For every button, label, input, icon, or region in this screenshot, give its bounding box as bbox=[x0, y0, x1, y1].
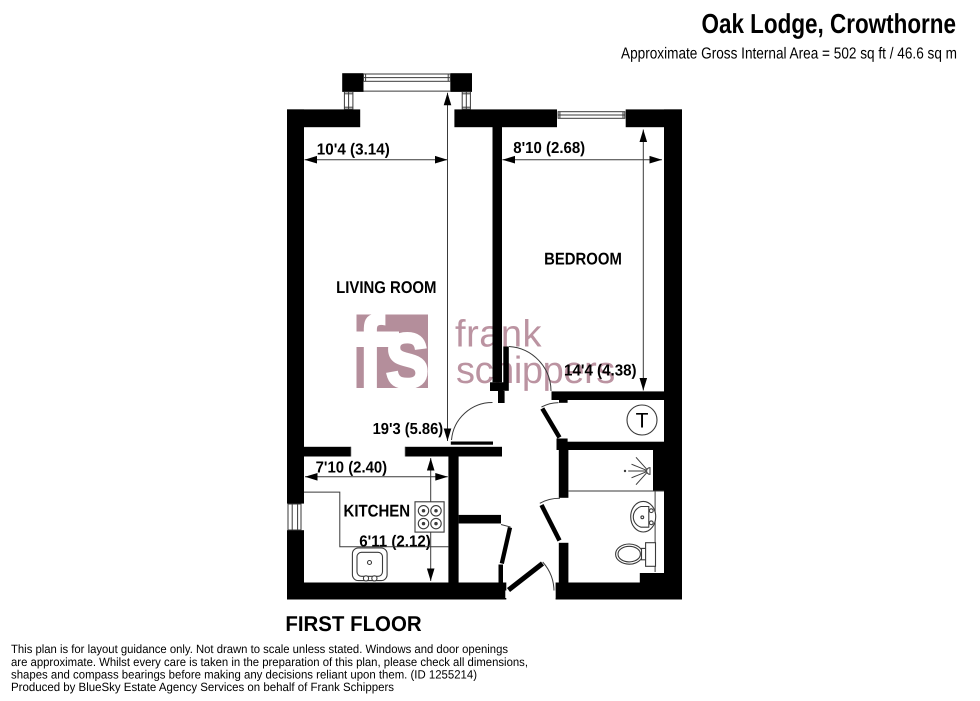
svg-text:FIRST FLOOR: FIRST FLOOR bbox=[285, 612, 422, 636]
svg-text:14'4 (4.38): 14'4 (4.38) bbox=[564, 363, 637, 380]
svg-text:Produced by BlueSky Estate Age: Produced by BlueSky Estate Agency Servic… bbox=[11, 680, 394, 694]
svg-text:BEDROOM: BEDROOM bbox=[544, 250, 622, 269]
svg-text:10'4 (3.14): 10'4 (3.14) bbox=[317, 142, 390, 159]
svg-text:KITCHEN: KITCHEN bbox=[344, 501, 411, 520]
svg-text:fs: fs bbox=[357, 297, 430, 409]
svg-text:T: T bbox=[636, 410, 649, 433]
svg-text:8'10 (2.68): 8'10 (2.68) bbox=[513, 140, 585, 157]
svg-text:19'3 (5.86): 19'3 (5.86) bbox=[373, 421, 444, 438]
svg-text:7'10 (2.40): 7'10 (2.40) bbox=[316, 459, 388, 476]
svg-text:Oak Lodge, Crowthorne: Oak Lodge, Crowthorne bbox=[702, 8, 957, 39]
svg-text:Approximate Gross Internal Are: Approximate Gross Internal Area = 502 sq… bbox=[621, 46, 957, 63]
svg-text:LIVING ROOM: LIVING ROOM bbox=[336, 278, 436, 297]
